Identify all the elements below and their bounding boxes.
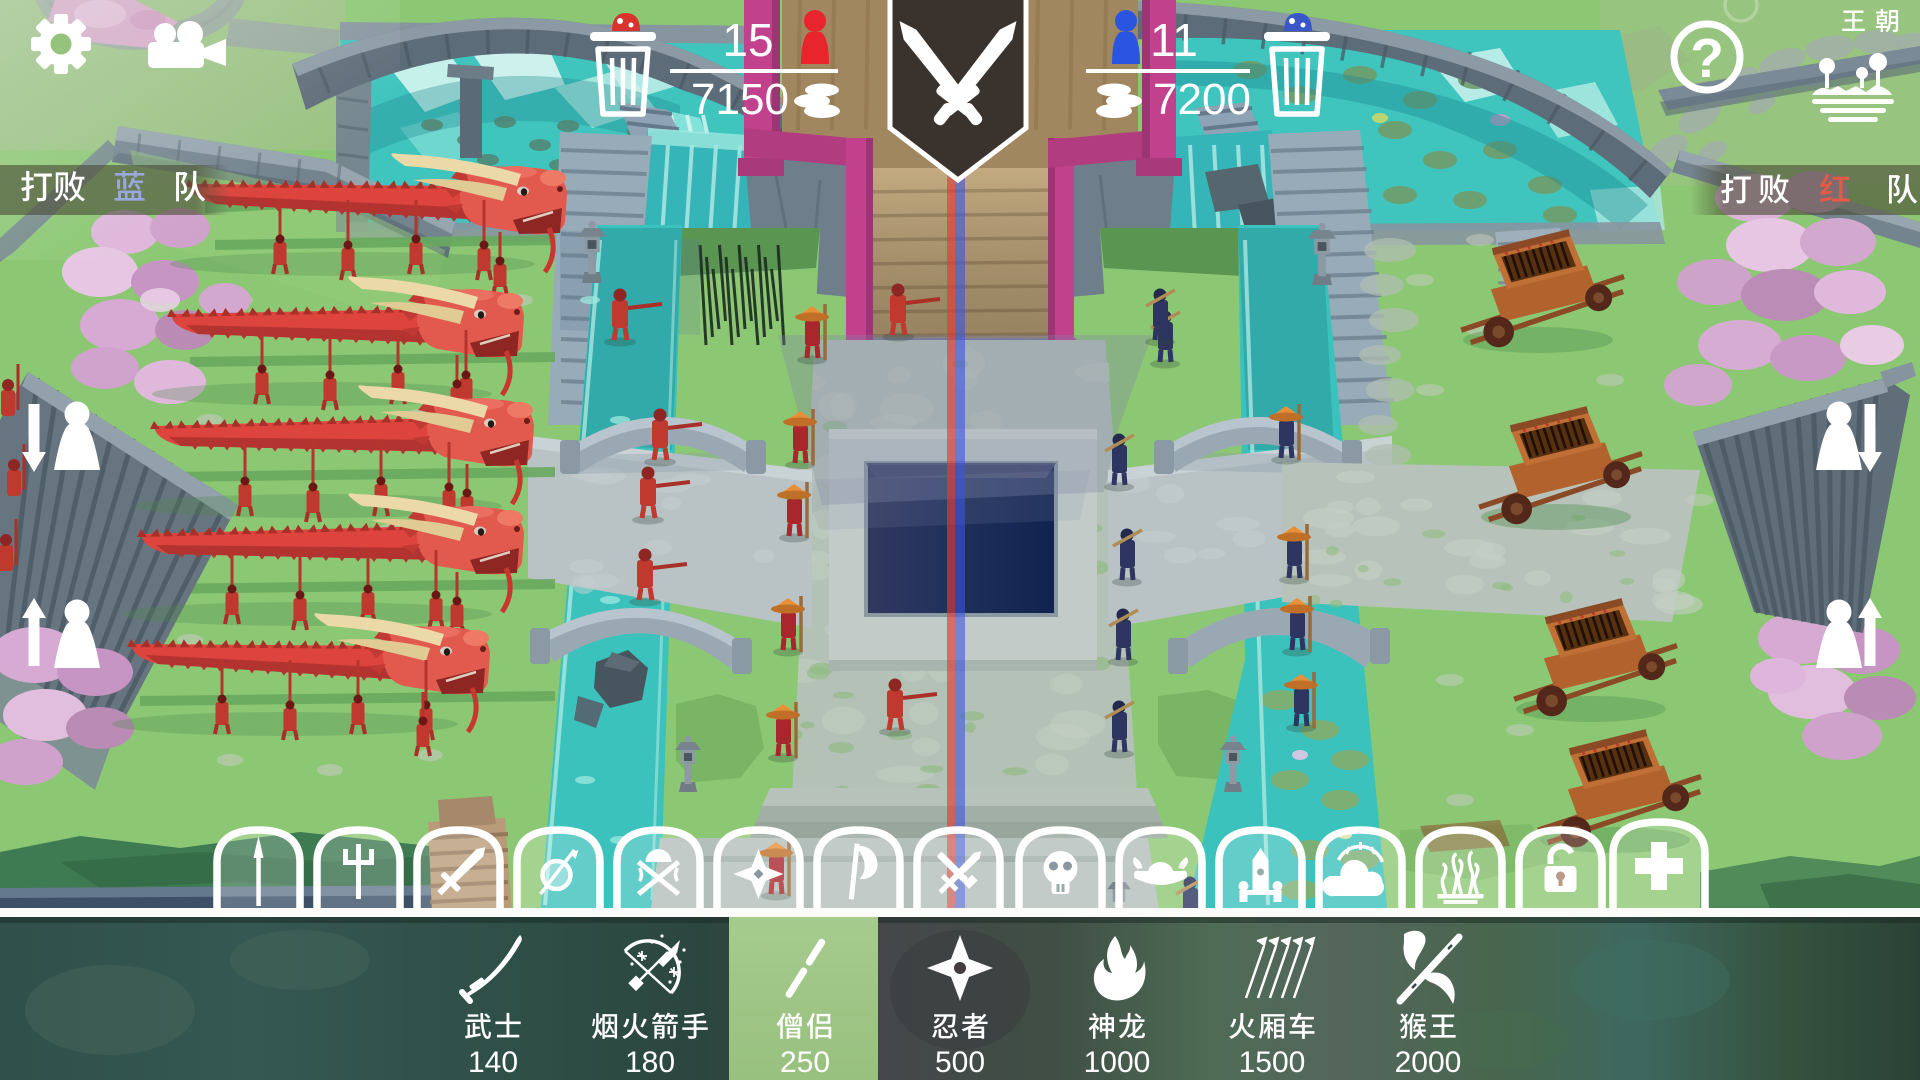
svg-text:15: 15 — [722, 14, 773, 66]
svg-text:?: ? — [1690, 27, 1724, 89]
svg-text:180: 180 — [625, 1046, 675, 1079]
svg-text:2000: 2000 — [1395, 1046, 1462, 1079]
svg-text:7200: 7200 — [1153, 75, 1251, 124]
svg-text:11: 11 — [1150, 14, 1198, 66]
svg-text:1500: 1500 — [1239, 1046, 1306, 1079]
svg-text:140: 140 — [468, 1046, 518, 1079]
svg-text:7150: 7150 — [691, 75, 789, 124]
svg-text:500: 500 — [935, 1046, 985, 1079]
svg-text:1000: 1000 — [1084, 1046, 1151, 1079]
svg-text:250: 250 — [780, 1046, 830, 1079]
